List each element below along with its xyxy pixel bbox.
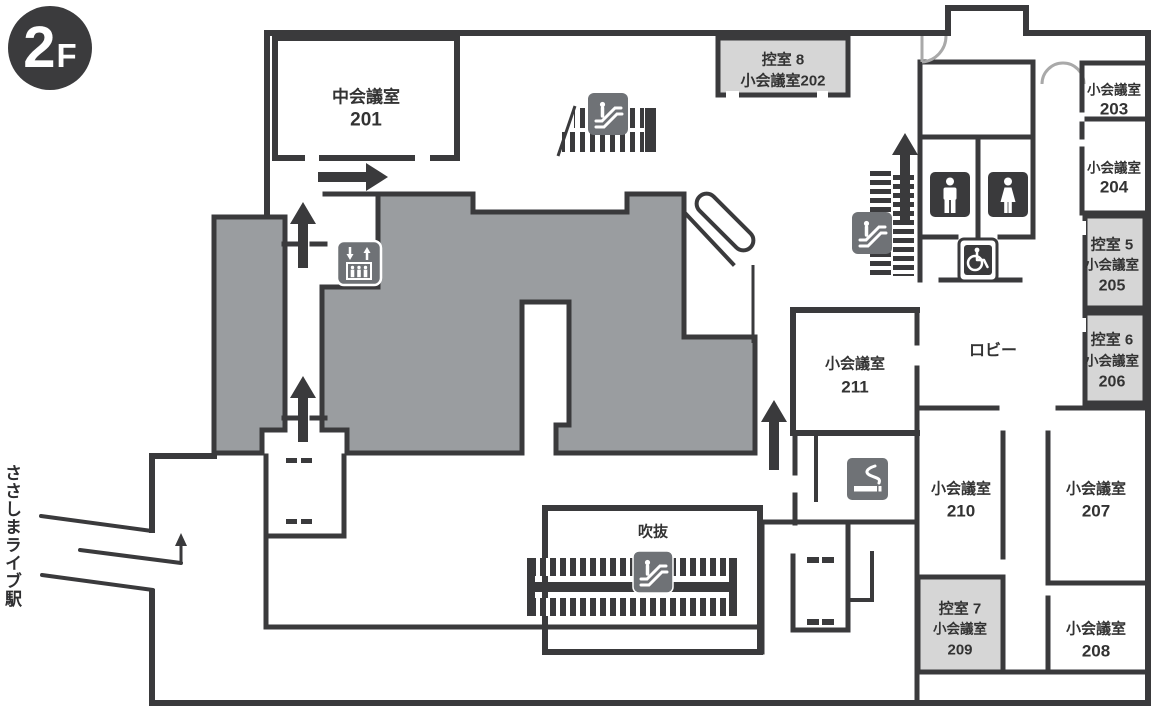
direction-arrow-right [318,163,388,191]
door-swing-arc [922,36,946,62]
vestibule-door-dash [301,458,312,463]
atrium-escalator-band [527,558,737,576]
floor-map-2f: 中会議室 201 控室 8 小会議室202 小会議室 203 小会議室 204 … [0,0,1155,711]
room-206-line1: 控室 6 [1091,331,1134,349]
band-cap [527,558,535,616]
floor-badge: 2 F [8,6,92,90]
utility-door-dash [822,557,834,563]
double-door-arcs [1042,63,1084,84]
room-211-number: 211 [841,378,868,397]
room-203-name: 小会議室 [1087,82,1141,98]
wheelchair-accessible-icon [959,239,997,281]
room-209-number: 209 [947,642,972,659]
lobby-label: ロビー [969,342,1017,360]
room-210-number: 210 [947,502,975,521]
room-202-line1: 控室 8 [762,51,805,69]
room-201-number: 201 [350,110,382,131]
womens-toilet-icon [988,172,1028,217]
utility-door-dash [807,557,819,563]
room-205-line2: 小会議室 [1085,257,1139,273]
atrium-escalator-rail [527,582,737,592]
vestibule-door-dash [301,519,312,524]
floor-plan-svg: 中会議室 201 控室 8 小会議室202 小会議室 203 小会議室 204 … [0,0,1155,711]
atrium-label: 吹抜 [638,523,669,541]
main-hall-area [322,194,755,453]
room-203-number: 203 [1100,100,1128,119]
door-gap [726,91,739,99]
utility-door-dash [822,619,834,625]
vestibule-door-dash [286,519,297,524]
utility-room-inner-walls [848,553,872,600]
floor-suffix: F [57,37,77,75]
room-209-line1: 控室 7 [939,600,982,618]
band-cap [729,558,737,616]
vestibule-walls [266,456,344,627]
escalator-icon [633,551,673,593]
walkway-arrow-head [175,533,187,546]
elevator-icon [337,241,381,285]
room-206-line2: 小会議室 [1085,353,1139,369]
escalator-icon [852,212,892,254]
utility-door-dash [807,619,819,625]
room-207-name: 小会議室 [1066,480,1126,498]
direction-arrow-up [290,202,316,268]
diagonal-door-leaf [692,189,757,254]
escalator-icon [588,93,628,135]
direction-arrow-up [761,400,787,470]
door-gap [1079,221,1086,235]
west-hall-area [214,217,285,453]
door-gap [1079,318,1086,332]
room-207-number: 207 [1082,502,1110,521]
room-209-line2: 小会議室 [933,621,987,637]
station-walkway [41,516,181,590]
smoking-area-icon [847,458,888,500]
floor-number: 2 [23,19,55,77]
utility-room-walls [793,522,848,630]
room-206-number: 206 [1099,374,1126,391]
mens-toilet-icon [930,172,970,217]
door-gap [817,91,828,99]
room-208-name: 小会議室 [1066,620,1126,638]
vestibule-door-dash [286,458,297,463]
smoking-room-walls [762,433,917,652]
station-label: ささしまライブ駅 [3,464,20,608]
room-205-number: 205 [1099,278,1126,295]
room-204-name: 小会議室 [1087,160,1141,176]
atrium-escalator-band [527,598,737,616]
direction-arrow-up [290,376,316,442]
room-205-line1: 控室 5 [1091,236,1134,254]
room-208-number: 208 [1082,642,1110,661]
room-204-number: 204 [1100,178,1129,197]
escalator-end-cap [645,108,656,152]
room-211-name: 小会議室 [825,355,885,373]
room-201-name: 中会議室 [332,87,400,107]
room-202-line2: 小会議室202 [740,72,825,90]
room-210-name: 小会議室 [931,480,991,498]
